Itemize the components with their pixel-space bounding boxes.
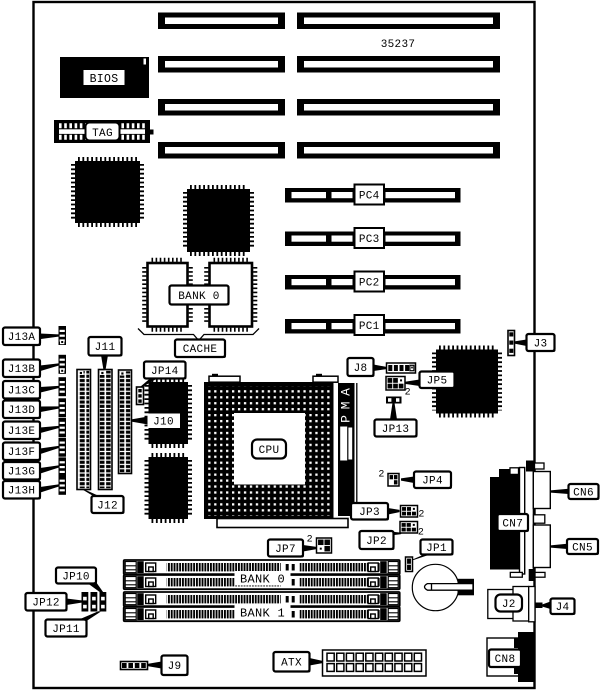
svg-text:CN5: CN5 xyxy=(572,542,593,554)
svg-text:JP1: JP1 xyxy=(426,543,447,555)
svg-text:J13E: J13E xyxy=(8,426,36,438)
svg-text:J10: J10 xyxy=(153,417,174,429)
svg-text:JP10: JP10 xyxy=(62,571,90,583)
svg-text:BANK 0: BANK 0 xyxy=(240,573,285,587)
svg-text:J13H: J13H xyxy=(8,486,36,498)
svg-text:J13G: J13G xyxy=(8,467,36,479)
svg-text:BIOS: BIOS xyxy=(90,73,119,86)
svg-text:TAG: TAG xyxy=(92,128,113,140)
svg-text:JP13: JP13 xyxy=(382,424,410,436)
svg-text:ATX: ATX xyxy=(281,658,302,670)
svg-text:2: 2 xyxy=(405,388,411,399)
svg-text:CN7: CN7 xyxy=(502,518,523,530)
svg-text:J13C: J13C xyxy=(8,386,36,398)
svg-text:2: 2 xyxy=(418,528,424,539)
svg-text:PC3: PC3 xyxy=(359,234,380,246)
svg-text:P: P xyxy=(338,415,353,423)
svg-text:JP11: JP11 xyxy=(52,624,80,636)
svg-text:2: 2 xyxy=(418,510,424,521)
svg-text:PC1: PC1 xyxy=(359,321,380,333)
svg-text:BANK 0: BANK 0 xyxy=(178,291,219,303)
svg-text:J13D: J13D xyxy=(8,405,36,417)
svg-text:CPU: CPU xyxy=(259,445,280,457)
svg-text:JP3: JP3 xyxy=(359,507,380,519)
svg-text:BANK 1: BANK 1 xyxy=(240,607,285,621)
svg-text:J9: J9 xyxy=(168,661,182,673)
svg-text:CN6: CN6 xyxy=(573,487,594,499)
svg-text:J12: J12 xyxy=(97,500,118,512)
svg-text:PC2: PC2 xyxy=(359,278,380,290)
svg-text:JP14: JP14 xyxy=(151,366,179,378)
svg-text:JP5: JP5 xyxy=(427,376,448,388)
svg-text:JP12: JP12 xyxy=(32,598,60,610)
svg-text:JP7: JP7 xyxy=(275,544,296,556)
svg-text:J13A: J13A xyxy=(8,332,36,344)
svg-text:J4: J4 xyxy=(556,602,570,614)
svg-text:M: M xyxy=(338,402,353,410)
svg-text:PC4: PC4 xyxy=(359,191,380,203)
svg-text:JP2: JP2 xyxy=(366,536,387,548)
svg-text:CACHE: CACHE xyxy=(183,344,218,356)
svg-text:J3: J3 xyxy=(534,338,548,350)
svg-text:J13B: J13B xyxy=(8,364,36,376)
svg-text:CN8: CN8 xyxy=(495,654,516,666)
svg-text:2: 2 xyxy=(307,535,313,546)
svg-text:J2: J2 xyxy=(502,599,516,611)
svg-text:J8: J8 xyxy=(354,363,368,375)
svg-text:J11: J11 xyxy=(95,342,116,354)
svg-text:JP4: JP4 xyxy=(422,476,443,488)
svg-text:2: 2 xyxy=(378,470,384,481)
svg-text:J13F: J13F xyxy=(8,447,36,459)
svg-text:A: A xyxy=(338,388,353,396)
svg-text:35237: 35237 xyxy=(381,39,416,51)
